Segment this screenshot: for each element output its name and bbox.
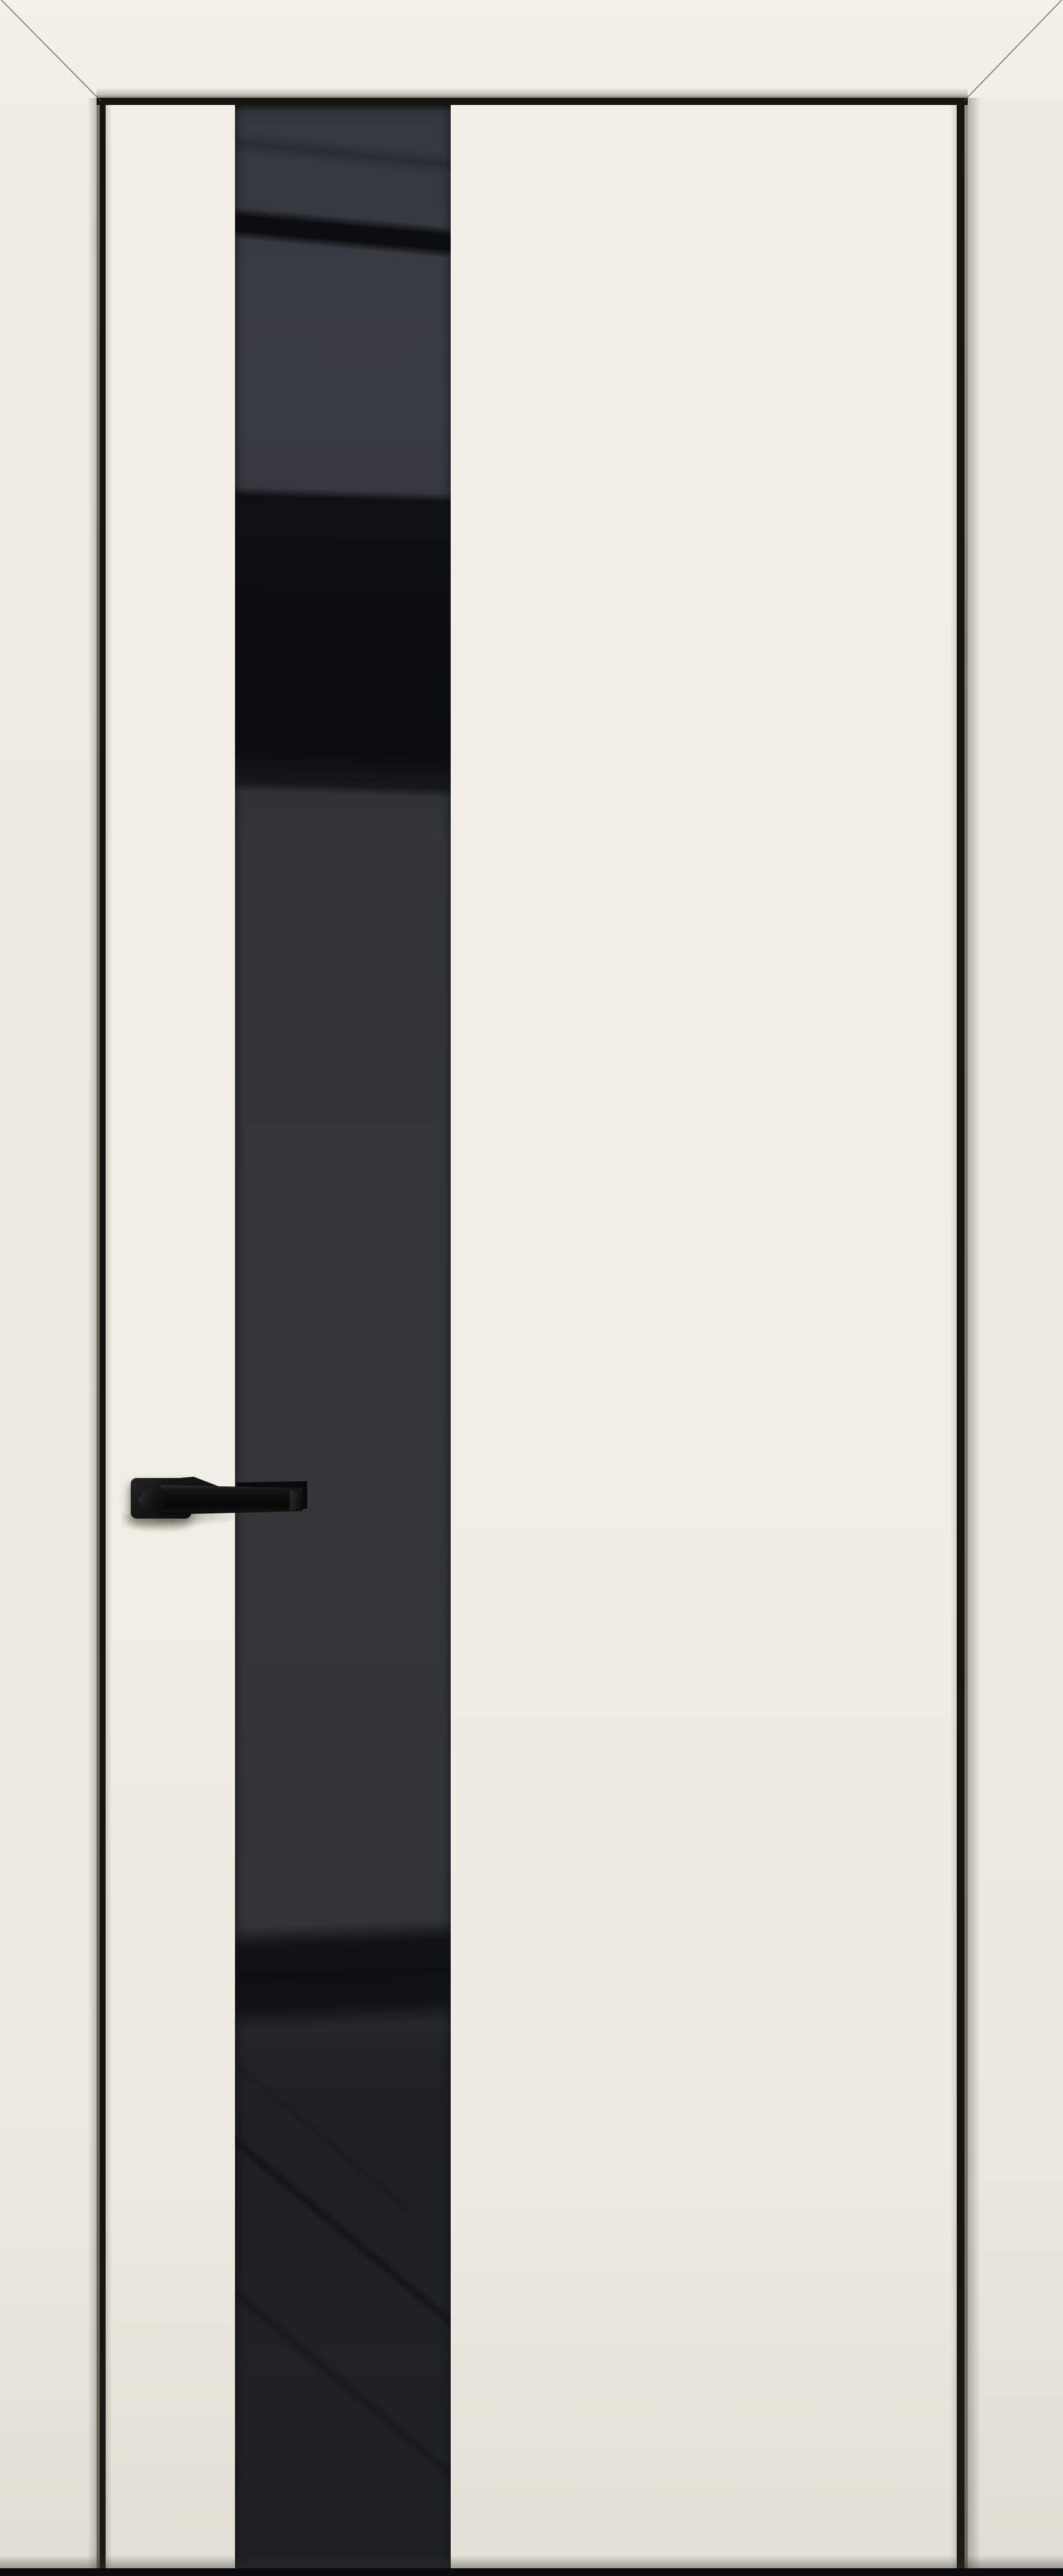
glass-reflection-faint-top	[235, 131, 451, 181]
door-stile-cream	[106, 105, 235, 2570]
glass-reflection-band-dark	[235, 486, 451, 798]
door-edge-trim-left	[100, 98, 106, 2570]
door-casing-left	[0, 98, 97, 2568]
glass-reflection-band-lower	[235, 1918, 451, 2031]
glass-insert	[235, 105, 451, 2570]
stile-inner-shadow	[106, 105, 112, 2570]
casing-contact-shadow-left	[88, 98, 97, 2568]
casing-contact-shadow-right	[968, 98, 981, 2568]
miter-joint-lines	[0, 0, 1063, 129]
floor-contact-shadow	[0, 2555, 1063, 2568]
miter-joint-line-left	[1, 0, 101, 101]
door-leaf	[97, 98, 968, 2570]
panel-inner-shadow	[950, 105, 957, 2570]
door-product-photo	[0, 0, 1063, 2576]
miter-joint-line-right	[964, 0, 1062, 101]
door-panel-cream	[451, 105, 957, 2570]
door-handle-lever	[161, 1485, 303, 1515]
door-edge-trim-right	[957, 98, 964, 2570]
door-edge-face-right	[964, 98, 968, 2570]
floor-gap-bar	[0, 2568, 1063, 2576]
door-casing-right	[968, 98, 1063, 2568]
glass-reflection-band-top	[235, 206, 451, 260]
